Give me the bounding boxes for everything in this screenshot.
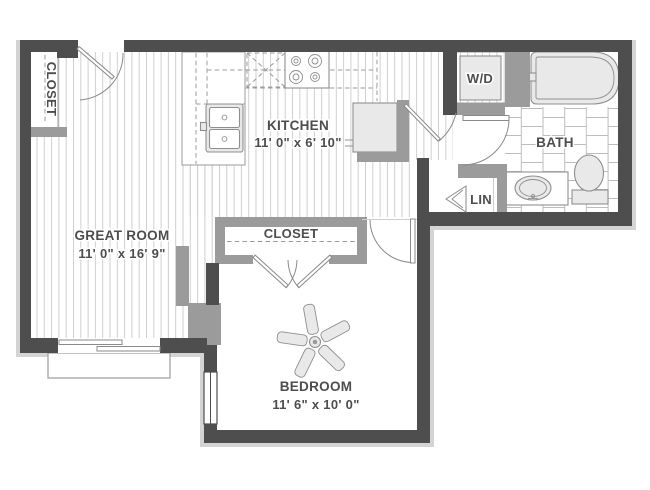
great-room-bottom-wall-left xyxy=(20,338,58,353)
bedroom-window xyxy=(204,372,217,424)
bedroom-west-wall-low xyxy=(204,424,217,436)
vanity-sink xyxy=(502,172,568,205)
bedroom-west-wall-upper xyxy=(206,263,219,305)
sliding-glass-door xyxy=(58,338,160,353)
ceiling-fan xyxy=(277,304,352,379)
wd-left-wall xyxy=(443,40,457,115)
kitchen-dimensions: 11' 0" x 6' 10" xyxy=(254,135,341,150)
bath-right-wall xyxy=(618,40,632,226)
bedroom-label: BEDROOM xyxy=(280,379,353,394)
fridge-wall-horizontal xyxy=(357,152,409,162)
bedroom-closet-label: CLOSET xyxy=(264,226,319,241)
bedroom-closet-doors xyxy=(253,255,332,288)
refrigerator xyxy=(345,103,397,152)
wd-lower-wall xyxy=(457,103,505,115)
great-room-east-stub xyxy=(176,246,189,306)
bedroom-door xyxy=(362,219,417,263)
washer-dryer-label: W/D xyxy=(467,71,493,86)
linen-label: LIN xyxy=(470,192,492,207)
entry-hinge-stub xyxy=(57,50,78,58)
top-wall-right xyxy=(124,40,632,52)
great-room-dimensions: 11' 0" x 16' 9" xyxy=(78,246,165,261)
kitchen-sink xyxy=(201,104,244,152)
bath-bottom-wall xyxy=(417,212,632,226)
entry-closet-wall xyxy=(31,127,67,137)
bedroom-west-wall-mid xyxy=(204,345,217,372)
bedroom-closet-left-stub xyxy=(215,255,253,264)
bedroom-bottom-wall xyxy=(204,430,430,443)
great-room-bottom-wall-right xyxy=(160,338,207,353)
great-room-label: GREAT ROOM xyxy=(75,228,170,243)
linen-side-wall xyxy=(497,172,507,212)
hall-linen-wall xyxy=(417,158,429,218)
entry-closet-label: CLOSET xyxy=(44,62,59,117)
floor-plan: W/D xyxy=(0,0,650,490)
washer-dryer: W/D xyxy=(457,52,506,103)
kitchen-label: KITCHEN xyxy=(267,118,329,133)
bath-label: BATH xyxy=(536,135,574,150)
bathtub xyxy=(527,52,619,104)
bedroom-dimensions: 11' 6" x 10' 0" xyxy=(272,397,359,412)
bedroom-east-wall xyxy=(417,217,430,443)
bedroom-closet-right-stub xyxy=(329,255,367,264)
linen-door xyxy=(446,186,466,212)
balcony xyxy=(48,353,170,378)
stove xyxy=(285,50,329,88)
bath-door xyxy=(463,116,509,166)
left-wall xyxy=(20,40,31,353)
floor-plan-canvas: W/D xyxy=(0,0,650,490)
sink-faucet-icon xyxy=(201,123,207,131)
